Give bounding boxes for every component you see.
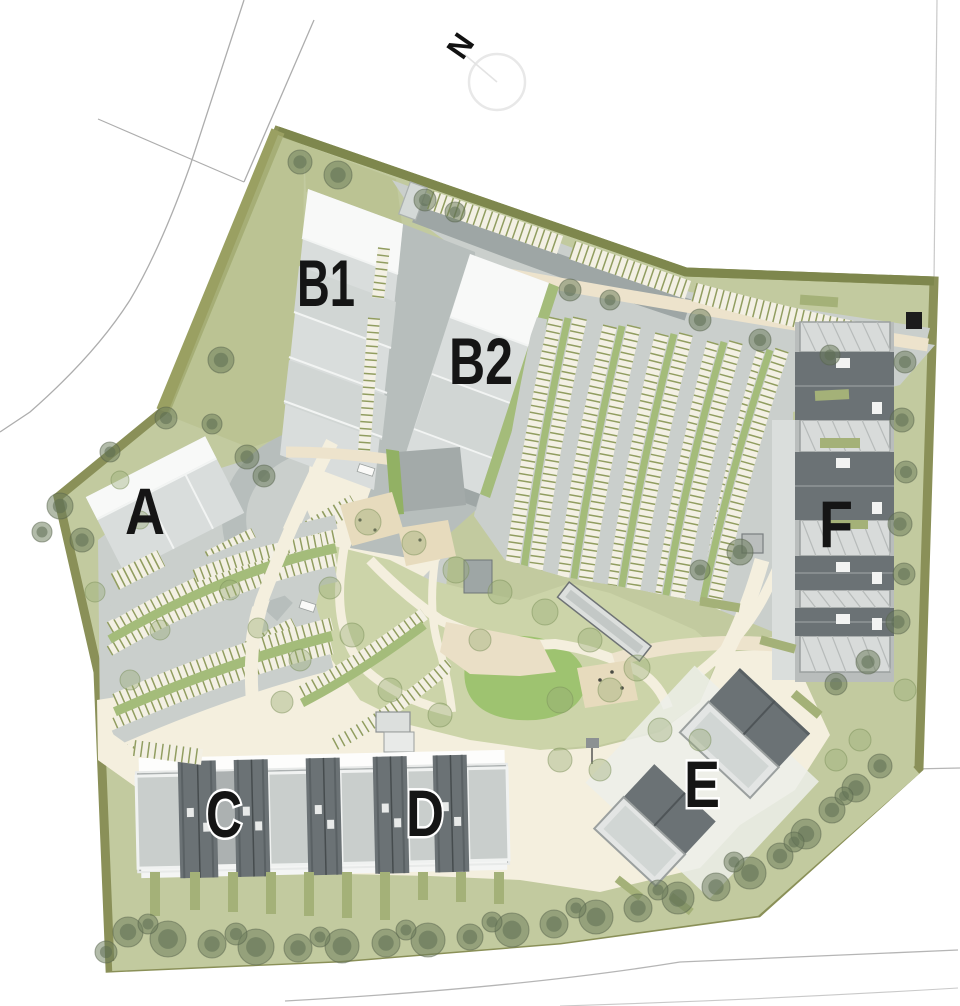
svg-text:C: C <box>206 777 242 851</box>
svg-text:A: A <box>125 474 165 548</box>
svg-text:B1: B1 <box>297 246 355 320</box>
svg-text:D: D <box>406 776 444 850</box>
svg-text:F: F <box>819 487 853 561</box>
svg-text:B2: B2 <box>449 324 513 398</box>
svg-text:E: E <box>684 747 720 821</box>
